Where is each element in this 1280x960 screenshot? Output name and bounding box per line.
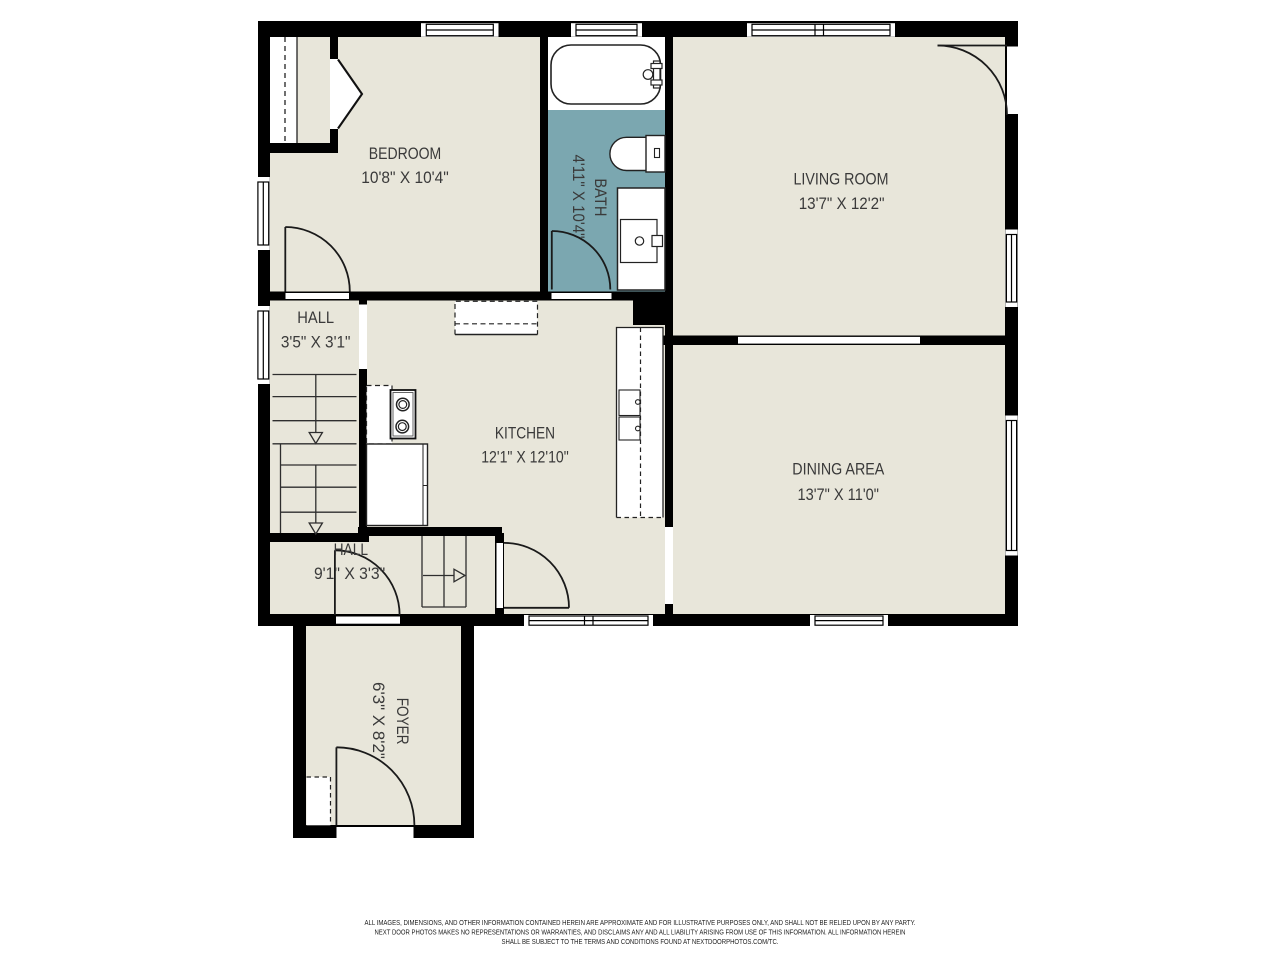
svg-text:ALL IMAGES, DIMENSIONS, AND OT: ALL IMAGES, DIMENSIONS, AND OTHER INFORM… xyxy=(365,918,916,927)
svg-text:SHALL BE SUBJECT TO THE TERMS: SHALL BE SUBJECT TO THE TERMS AND CONDIT… xyxy=(502,937,779,946)
svg-text:3'5" X 3'1": 3'5" X 3'1" xyxy=(281,334,351,352)
svg-text:HALL: HALL xyxy=(297,309,334,327)
svg-text:FOYER: FOYER xyxy=(393,698,411,745)
svg-text:9'1" X 3'3": 9'1" X 3'3" xyxy=(314,565,385,583)
svg-text:NEXT DOOR PHOTOS MAKES NO REPR: NEXT DOOR PHOTOS MAKES NO REPRESENTATION… xyxy=(375,927,906,936)
svg-text:LIVING ROOM: LIVING ROOM xyxy=(794,171,889,189)
svg-text:12'1" X 12'10": 12'1" X 12'10" xyxy=(481,449,569,467)
svg-text:KITCHEN: KITCHEN xyxy=(495,425,555,443)
svg-text:DINING AREA: DINING AREA xyxy=(792,461,884,479)
svg-text:13'7" X 12'2": 13'7" X 12'2" xyxy=(799,195,885,213)
svg-text:13'7" X 11'0": 13'7" X 11'0" xyxy=(797,486,879,504)
svg-text:4'11" X 10'4": 4'11" X 10'4" xyxy=(569,155,587,239)
svg-text:10'8" X 10'4": 10'8" X 10'4" xyxy=(361,169,449,187)
svg-text:BATH: BATH xyxy=(591,178,609,216)
svg-text:BEDROOM: BEDROOM xyxy=(369,145,442,163)
svg-text:6'3" X 8'2": 6'3" X 8'2" xyxy=(369,682,387,759)
svg-text:HALL: HALL xyxy=(334,541,368,559)
